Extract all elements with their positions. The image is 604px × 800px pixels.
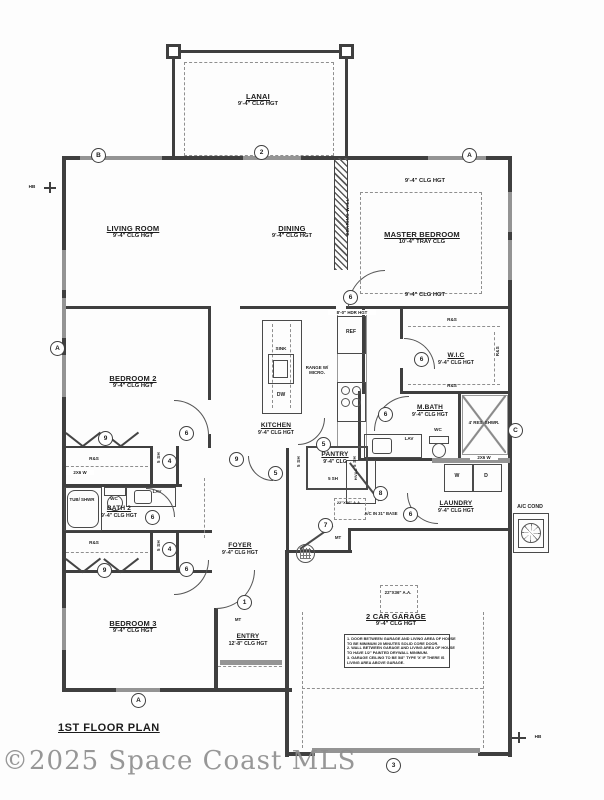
attic-access-label: 22"X36" A.A. [381,590,415,595]
wall [286,448,289,552]
header-height-label: 8'-0" HDR HGT [328,310,376,315]
shower-label: 4' RES. SHWR. [468,420,500,425]
hb-tick [518,732,520,743]
dw-label: DW [272,392,290,398]
room-name: BEDROOM 2 [85,374,181,383]
wall [240,306,336,309]
rs-label: R&S [438,383,466,389]
room-ceiling: 9'-4" CLG HGT [395,178,455,185]
door-marker-9: 9 [97,563,112,578]
room-label-master-clg-top: 9'-4" CLG HGT [395,178,455,185]
lanai-wall [345,50,348,158]
ac-in-base-label: A/C IN 31" BASE [364,511,398,516]
room-ceiling: 9'-4" CLG HGT [85,383,181,390]
room-label-foyer: FOYER 9'-4" CLG HGT [208,542,272,557]
shelves-label: 5 SH [157,452,161,463]
hb-label: HB [24,184,40,190]
garage-fixture-icon [296,544,315,563]
wall [208,306,211,400]
rs-label: R&S [80,540,108,546]
refrigerator [337,316,366,354]
hvac-label: HVAC [354,468,358,480]
wall [400,309,403,339]
room-name: LANAI [208,92,308,101]
grid-marker-b: B [91,148,106,163]
grid-marker-a: A [131,693,146,708]
grid-marker-c: C [508,423,523,438]
door-marker-9: 9 [229,452,244,467]
window [508,240,512,280]
room-label-garage: 2 CAR GARAGE 9'-4" CLG HGT [336,612,456,629]
garage-door-dashed [483,612,484,748]
room-name: DINING [248,224,336,233]
room-label-ac-cond: A/C COND [506,504,554,510]
plan-title: 1ST FLOOR PLAN [58,722,160,734]
room-label-entry: ENTRY 12'-8" CLG HGT [212,633,284,648]
room-ceiling: 9'-4" CLG HGT [85,233,181,240]
shelf-line [408,326,500,327]
sink-label: SINK [266,346,296,352]
door-marker-6: 6 [378,407,393,422]
shelf-line [66,552,148,553]
grid-marker-3: 3 [386,758,401,773]
room-name: 2 CAR GARAGE [336,612,456,621]
lanai-post [339,44,354,59]
wall [62,306,210,309]
room-ceiling: 9'-4" CLG HGT [88,513,150,520]
window [62,250,66,290]
room-label-bedroom3: BEDROOM 3 9'-4" CLG HGT [85,619,181,636]
shelf-line [494,332,495,382]
bearing-wall-label: BEARING WALL [346,198,350,236]
bifold-door [66,432,84,447]
door-marker-4: 4 [162,542,177,557]
toilet-bowl [432,443,446,458]
lanai-wall [172,50,175,158]
door-marker-5: 5 [316,437,331,452]
room-name: ENTRY [212,633,284,641]
room-label-living: LIVING ROOM 9'-4" CLG HGT [85,224,181,241]
ac-fan-icon [521,523,541,543]
door-marker-8: 8 [373,486,388,501]
kitchen-sink-basin [273,360,288,378]
wc-label: WC [103,496,125,502]
garage-note: 1. DOOR BETWEEN GARAGE AND LIVING AREA O… [344,634,450,668]
closet-wall [176,446,179,486]
door-marker-5: 5 [268,466,283,481]
door-marker-1: 1 [237,595,252,610]
burner-icon [352,398,361,407]
garage-door-dashed [302,612,303,748]
dryer-label: D [479,473,493,479]
vanity-basin [372,438,392,454]
hb-label: HB [530,734,546,740]
rs-label: R&S [438,317,466,323]
shelves-label: 5 SH [157,540,161,551]
wall-2x6-label: 2X6 W [66,470,94,475]
sliding-door [243,156,301,160]
room-name: MASTER BEDROOM [368,230,476,239]
door-marker-6: 6 [179,426,194,441]
lanai-wall [172,50,348,53]
room-ceiling: 9'-4" CLG HGT [248,233,336,240]
window [116,688,160,692]
closet-wall [150,532,153,572]
grid-marker-2: 2 [254,145,269,160]
wall [214,608,218,690]
wall [400,391,510,394]
floor-plan-sheet: LANAI 9'-4" CLG HGT LIVING ROOM 9'-4" CL… [0,0,604,800]
wc-label: WC [427,427,449,433]
room-ceiling: 9'-4" CLG HGT [336,621,456,628]
lav-label: LAV [398,436,420,442]
lanai-post [166,44,181,59]
burner-icon [341,386,350,395]
grid-marker-a: A [462,148,477,163]
mt-label: MT [228,617,248,622]
door-marker-6: 6 [179,562,194,577]
window [62,608,66,650]
entry-threshold-dashed [218,666,282,667]
rs-label: R&S [496,346,500,356]
room-label-bedroom2: BEDROOM 2 9'-4" CLG HGT [85,374,181,391]
wall-2x6-label: 2X6 W [470,455,498,460]
burner-icon [341,398,350,407]
watermark: ©2025 Space Coast MLS [2,746,356,776]
shelves-label: 5 SH [318,476,348,481]
hb-tick [49,182,51,193]
ref-label: REF [340,329,362,335]
room-ceiling: 10'-4" TRAY CLG [368,239,476,246]
room-label-lanai: LANAI 9'-4" CLG HGT [208,92,308,109]
room-name: BEDROOM 3 [85,619,181,628]
closet-wall [62,446,152,448]
bifold-door [121,432,139,447]
room-label-bath2: BATH 2 9'-4" CLG HGT [88,505,150,520]
garage-note-line: 3. GARAGE CEILING TO BE 5/8" TYPE 'X' IF… [347,656,447,661]
door-marker-7: 7 [318,518,333,533]
washer-label: W [450,473,464,479]
window [62,298,66,338]
wall [208,434,211,448]
garage-dashed [302,688,483,689]
room-ceiling: 9'-4" CLG HGT [208,101,308,108]
room-name: FOYER [208,542,272,550]
attic-access-label: 22"X36" A.A. [332,501,366,506]
window [62,355,66,397]
wall [478,752,512,756]
wall [285,550,289,757]
shelves-label: 5 SH [353,456,357,467]
foyer-dashed [204,478,205,538]
room-ceiling: 9'-4" CLG HGT [85,628,181,635]
garage-note-line: LIVING AREA ABOVE GARAGE. [347,661,447,666]
window [428,156,486,160]
wall [348,528,512,531]
door-marker-9: 9 [98,431,113,446]
lanai-ceiling-dashed [184,62,334,156]
room-ceiling: 9'-4" CLG HGT [208,550,272,557]
door-marker-6: 6 [403,507,418,522]
door-marker-6: 6 [145,510,160,525]
grid-marker-a: A [50,341,65,356]
room-ceiling: 12'-8" CLG HGT [212,641,284,648]
range-label: RANGE W/ MICRO. [300,365,334,376]
shelf-line [66,466,148,467]
door-marker-6: 6 [414,352,429,367]
shelves-label: 5 SH [297,456,301,467]
window [508,192,512,232]
room-name: LIVING ROOM [85,224,181,233]
room-label-master-clg-bottom: 9'-4" CLG HGT [395,292,455,299]
tub-label: TUB/ SHWR [67,497,97,502]
burner-icon [352,386,361,395]
door-marker-6: 6 [343,290,358,305]
room-label-master: MASTER BEDROOM 10'-4" TRAY CLG [368,230,476,247]
door-marker-4: 4 [162,454,177,469]
mt-label: MT [328,535,348,540]
room-ceiling: 9'-4" CLG HGT [395,292,455,299]
entry-door [220,660,282,665]
wall [458,391,461,461]
room-label-dining: DINING 9'-4" CLG HGT [248,224,336,241]
wall [62,688,292,692]
rs-label: R&S [80,456,108,462]
closet-wall [150,446,153,486]
room-name: BATH 2 [88,505,150,513]
